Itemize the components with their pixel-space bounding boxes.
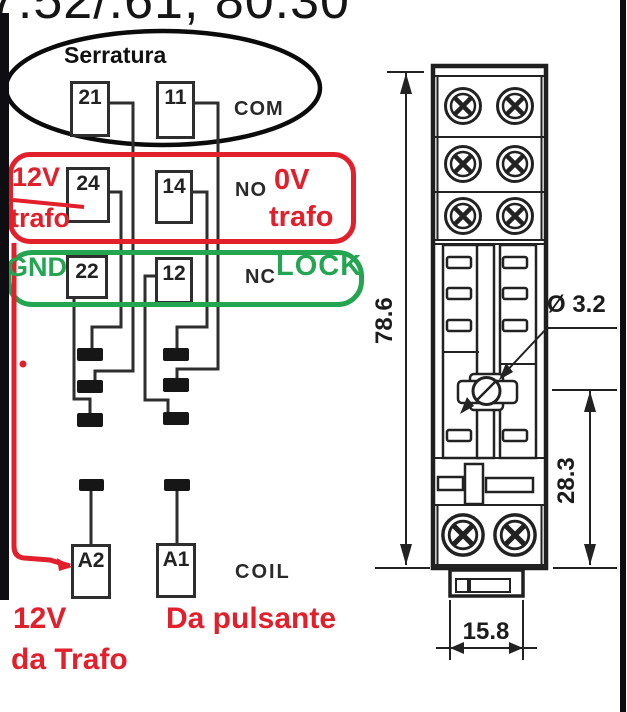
- com-label: COM: [234, 99, 284, 119]
- screw-icon: [495, 515, 535, 555]
- right-crop-bar: [620, 0, 626, 712]
- coil-label: COIL: [235, 562, 291, 582]
- screw-icon: [446, 199, 481, 234]
- dim-width-label: 15.8: [463, 618, 510, 645]
- annotation-coil-12v: 12V: [13, 604, 66, 634]
- red-dot: [20, 361, 27, 368]
- socket-tab: [450, 570, 523, 596]
- annotation-0v-trafo-line2: trafo: [269, 203, 333, 232]
- socket-mechanical-drawing: 78.6 28.3 Ø 3.2 15.8: [370, 0, 627, 712]
- nc-label: NC: [245, 267, 276, 287]
- red-wire: [14, 243, 70, 566]
- screw-icon: [498, 89, 533, 124]
- annotation-12v-trafo-line1: 12V: [12, 164, 60, 191]
- screw-icon: [446, 147, 481, 182]
- annotation-gnd: GND: [7, 254, 67, 281]
- dim-height-label: 78.6: [371, 297, 398, 344]
- annotation-12v-trafo-line2: trafo: [10, 205, 70, 232]
- annotation-coil-da-trafo: da Trafo: [11, 645, 128, 675]
- screw-icon: [443, 515, 483, 555]
- socket-channels: [443, 245, 536, 458]
- screw-icon: [446, 89, 481, 124]
- no-label: NO: [235, 180, 267, 200]
- screw-icon: [498, 147, 533, 182]
- serratura-label: Serratura: [64, 44, 166, 67]
- dim-hole-label: Ø 3.2: [547, 291, 606, 318]
- annotation-coil-da-pulsante: Da pulsante: [166, 604, 336, 634]
- left-crop-bar: [0, 13, 9, 600]
- relay-wiring-diagram: 7.52/.61, 80.30 21 11 24 14 22 12 A: [0, 0, 627, 712]
- dim-lower-label: 28.3: [553, 457, 580, 504]
- annotation-0v-trafo-line1: 0V: [274, 166, 309, 195]
- screw-icon: [498, 199, 533, 234]
- annotation-lock: LOCK: [276, 252, 362, 281]
